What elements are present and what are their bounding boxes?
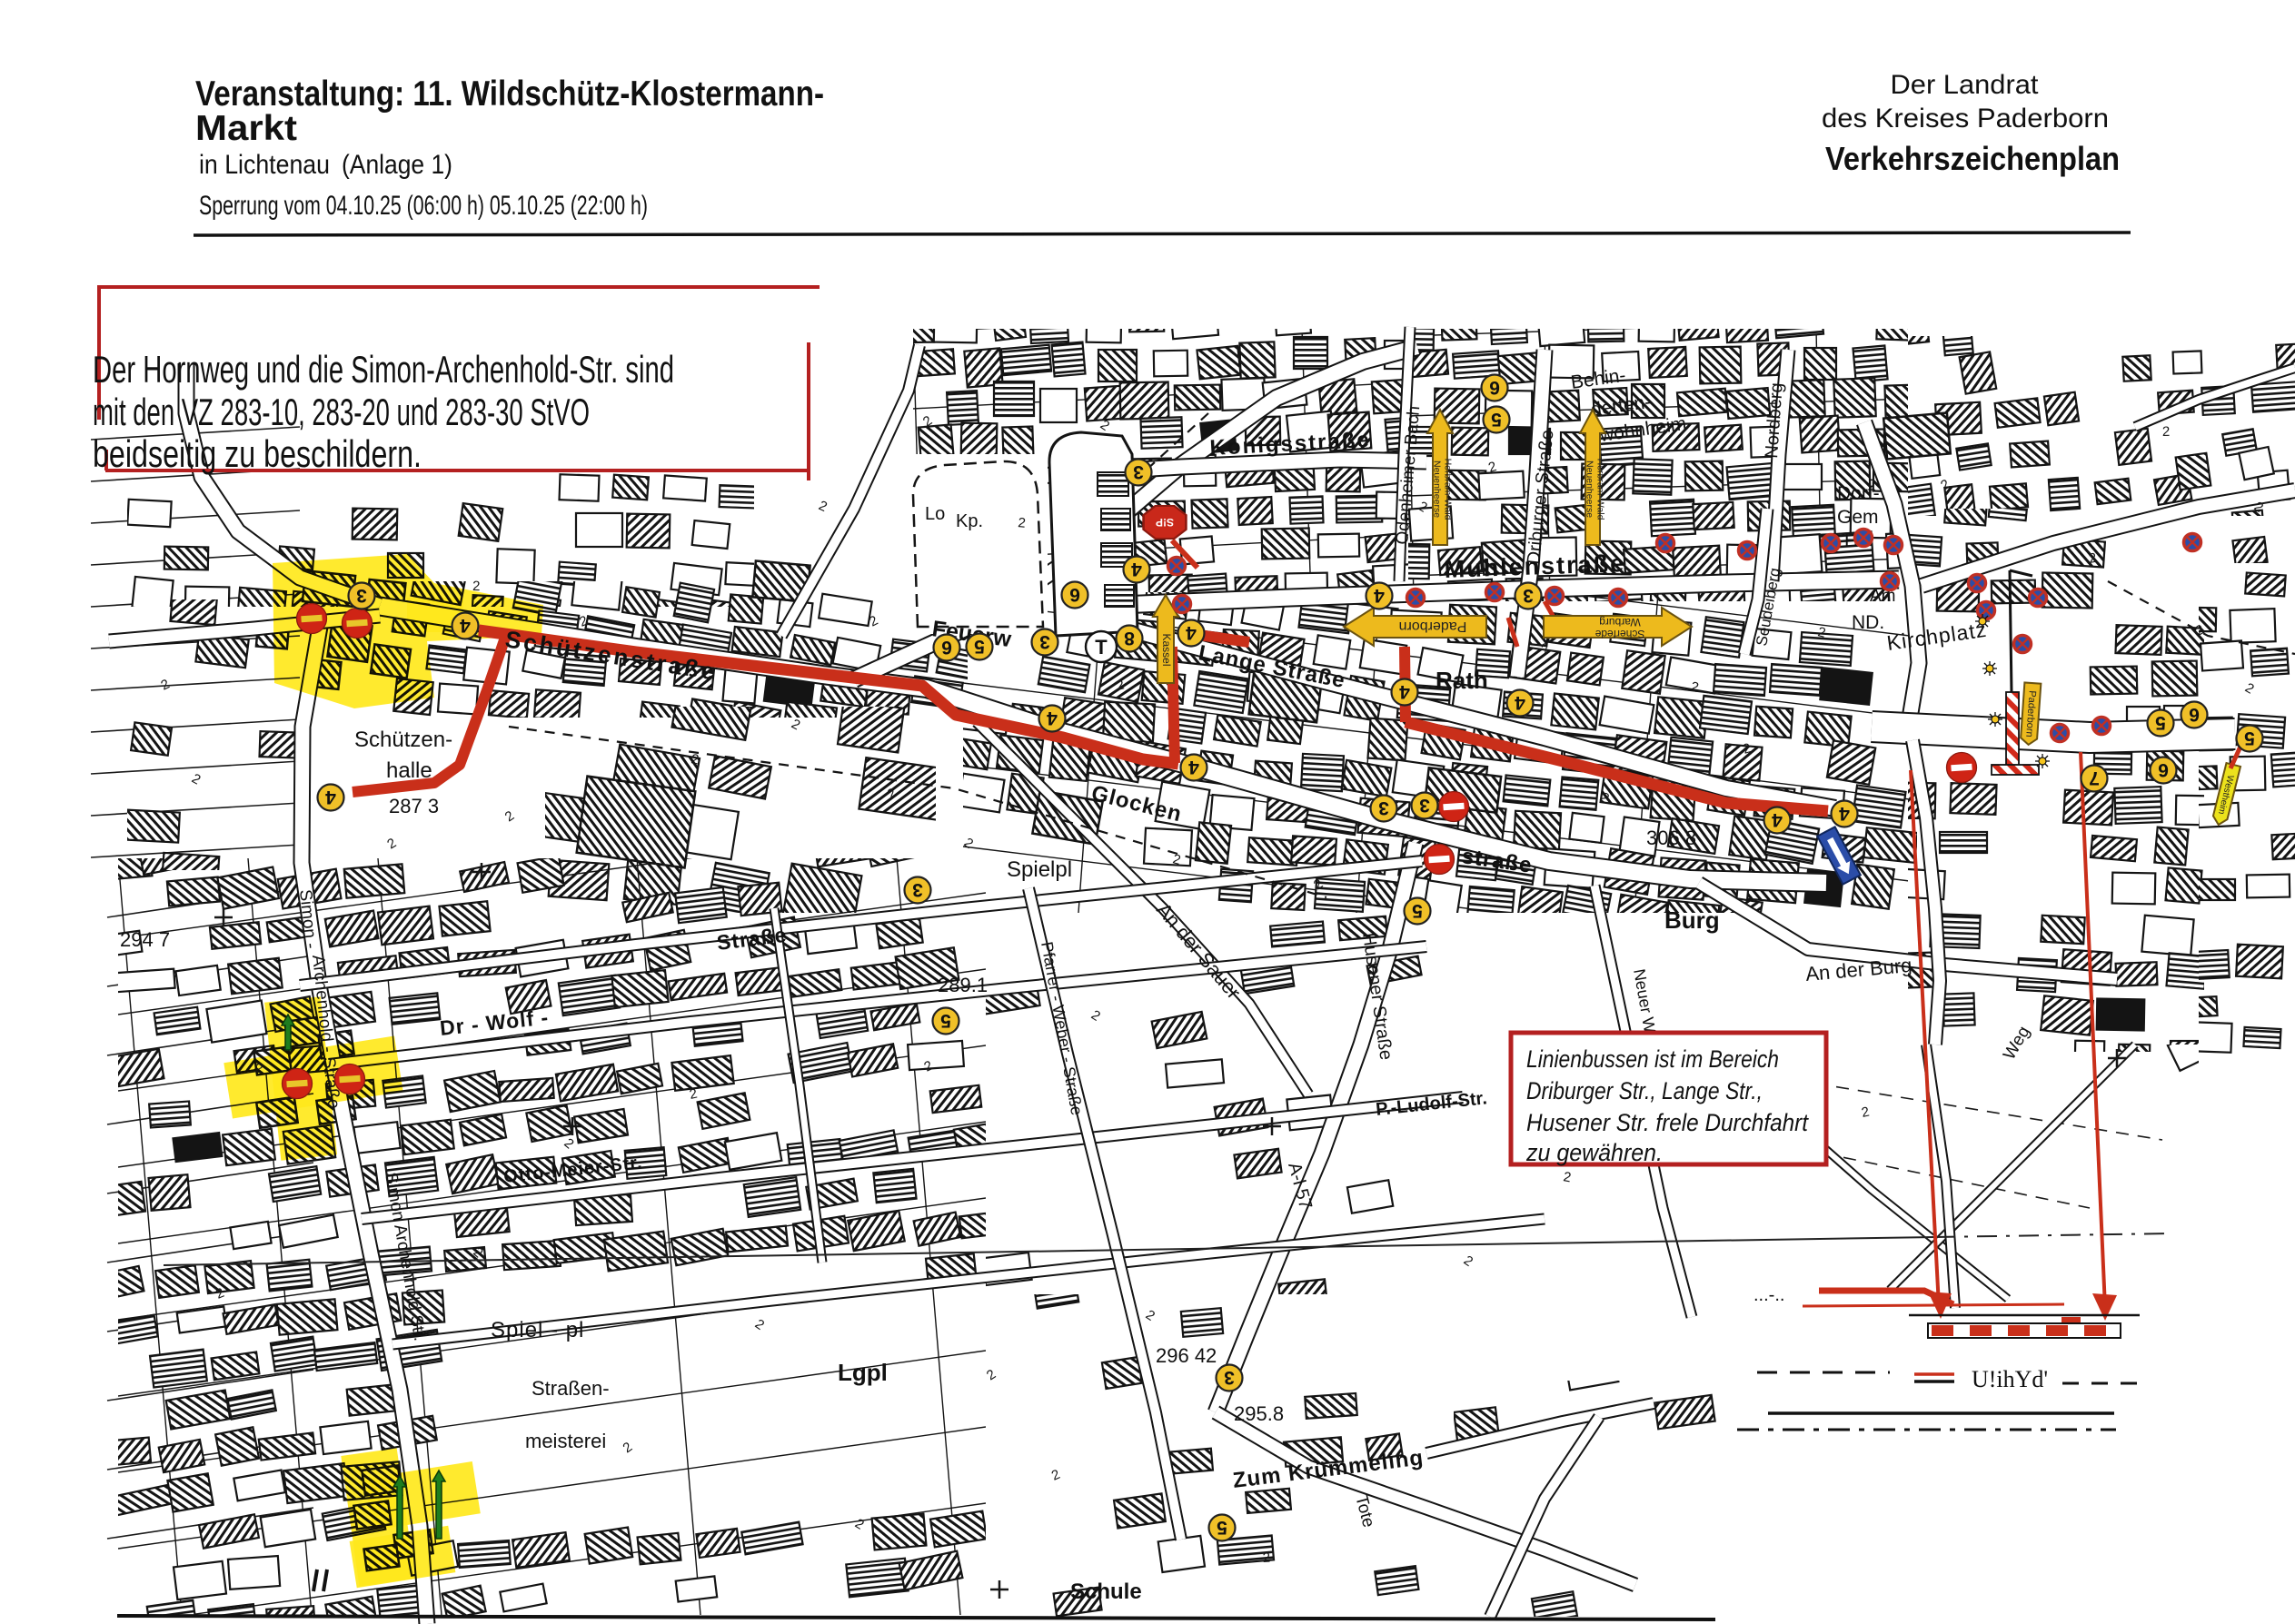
svg-text:zu gewähren.: zu gewähren. xyxy=(1525,1139,1663,1166)
svg-text:des Kreises Paderborn: des Kreises Paderborn xyxy=(1822,104,2109,134)
svg-text:2: 2 xyxy=(472,579,481,594)
svg-text:4: 4 xyxy=(1839,803,1850,824)
svg-text:Spielpl: Spielpl xyxy=(1007,857,1072,882)
svg-text:6: 6 xyxy=(2158,759,2169,780)
svg-text:Burg: Burg xyxy=(1664,906,1720,934)
svg-text:287 3: 287 3 xyxy=(389,795,439,817)
svg-text:6: 6 xyxy=(1069,584,1080,605)
svg-text:4: 4 xyxy=(325,787,336,807)
svg-text:5: 5 xyxy=(2244,728,2255,748)
svg-text:Schützen-: Schützen- xyxy=(354,728,452,752)
svg-text:3: 3 xyxy=(1378,797,1389,818)
svg-text:3: 3 xyxy=(1224,1367,1235,1388)
svg-text:5: 5 xyxy=(2155,712,2166,733)
svg-text:4: 4 xyxy=(1515,692,1525,713)
svg-text:289.1: 289.1 xyxy=(938,974,988,996)
svg-text:Herbram-Wald: Herbram-Wald xyxy=(1595,459,1606,520)
svg-text:Neuenheerse: Neuenheerse xyxy=(1584,460,1595,518)
svg-text:Veranstaltung: 11. Wildschütz-: Veranstaltung: 11. Wildschütz-Klosterman… xyxy=(195,74,824,114)
svg-text:Dorf-: Dorf- xyxy=(1837,483,1880,504)
svg-text:U!ihYd': U!ihYd' xyxy=(1972,1366,2048,1392)
svg-text:halle: halle xyxy=(386,758,432,783)
svg-text:3: 3 xyxy=(1523,585,1534,606)
svg-text:Warburg: Warburg xyxy=(1599,616,1641,629)
svg-text:Spiel - pl: Spiel - pl xyxy=(491,1318,584,1342)
svg-text:8: 8 xyxy=(1124,628,1135,649)
svg-text:3: 3 xyxy=(1133,461,1144,482)
svg-text:296 42: 296 42 xyxy=(1156,1344,1217,1367)
svg-text:5: 5 xyxy=(974,636,985,657)
svg-text:306 8: 306 8 xyxy=(1646,827,1696,849)
svg-text:3: 3 xyxy=(356,585,367,606)
svg-text:3: 3 xyxy=(912,879,923,900)
svg-text:Gem: Gem xyxy=(1837,507,1879,528)
svg-text:Markt: Markt xyxy=(195,109,297,148)
svg-text:Kassel: Kassel xyxy=(1160,633,1173,666)
svg-text:3: 3 xyxy=(1419,795,1430,816)
svg-text:4: 4 xyxy=(1186,622,1197,643)
svg-text:4: 4 xyxy=(1772,809,1783,830)
svg-text:Linienbussen ist im Bereich: Linienbussen ist im Bereich xyxy=(1526,1045,1779,1073)
svg-text:3: 3 xyxy=(1039,631,1050,652)
svg-text:6: 6 xyxy=(941,637,952,658)
svg-text:6: 6 xyxy=(1489,377,1500,398)
svg-text:Husener Str. frele Durchfahrt: Husener Str. frele Durchfahrt xyxy=(1526,1109,1809,1136)
svg-text:7: 7 xyxy=(2089,767,2100,788)
svg-text:295.8: 295.8 xyxy=(1234,1402,1284,1425)
svg-text:Der Landrat: Der Landrat xyxy=(1891,70,2040,100)
svg-text:4: 4 xyxy=(1374,585,1385,606)
svg-text:Lgpl: Lgpl xyxy=(838,1359,888,1386)
svg-text:Kp.: Kp. xyxy=(956,511,983,531)
svg-text:in Lichtenau: in Lichtenau xyxy=(199,150,330,180)
svg-text:Driburger Str., Lange Str.,: Driburger Str., Lange Str., xyxy=(1526,1077,1763,1104)
svg-text:2: 2 xyxy=(1018,515,1027,531)
svg-text:5: 5 xyxy=(1217,1517,1227,1538)
svg-text:294 7: 294 7 xyxy=(120,928,170,951)
svg-text:6: 6 xyxy=(2189,704,2200,725)
svg-text:beidseitig zu beschildern.: beidseitig zu beschildern. xyxy=(93,432,422,475)
svg-text:Straßen-: Straßen- xyxy=(532,1377,610,1400)
svg-text:Lo: Lo xyxy=(925,504,945,524)
svg-text:4: 4 xyxy=(460,615,471,636)
svg-text:Schule: Schule xyxy=(1070,1579,1142,1604)
svg-text:5: 5 xyxy=(940,1010,951,1031)
svg-text:4: 4 xyxy=(1188,757,1199,777)
svg-text:Neuenheerse: Neuenheerse xyxy=(1431,460,1442,518)
svg-text:4: 4 xyxy=(1047,708,1058,728)
svg-text:meisterei: meisterei xyxy=(525,1430,606,1452)
svg-text:2: 2 xyxy=(1262,1550,1270,1566)
svg-text:5: 5 xyxy=(1412,900,1423,921)
svg-text:4: 4 xyxy=(1131,559,1142,579)
svg-text:5: 5 xyxy=(1491,409,1502,430)
svg-text:mit den VZ 283-10, 283-20 und: mit den VZ 283-10, 283-20 und 283-30 StV… xyxy=(93,391,590,433)
svg-text:ND.: ND. xyxy=(1852,612,1884,633)
svg-text:...-..: ...-.. xyxy=(1754,1285,1784,1305)
svg-text:Scherfede: Scherfede xyxy=(1595,628,1644,640)
svg-text:Der Hornweg und die Simon-Arch: Der Hornweg und die Simon-Archenhold-Str… xyxy=(93,348,674,391)
svg-text:4: 4 xyxy=(1399,681,1410,702)
svg-text:(Anlage 1): (Anlage 1) xyxy=(342,150,452,180)
svg-text:Rath: Rath xyxy=(1436,667,1488,694)
svg-text:Paderborn: Paderborn xyxy=(1399,619,1467,634)
svg-text:S!P: S!P xyxy=(1156,516,1174,529)
svg-text:Sperrung vom 04.10.25 (06:00 h: Sperrung vom 04.10.25 (06:00 h) 05.10.25… xyxy=(199,191,648,221)
svg-text:2: 2 xyxy=(2162,424,2171,440)
svg-text:T: T xyxy=(1095,636,1108,659)
svg-text:Verkehrszeichenplan: Verkehrszeichenplan xyxy=(1825,140,2120,177)
svg-text:Herbram-Wald: Herbram-Wald xyxy=(1443,459,1454,520)
